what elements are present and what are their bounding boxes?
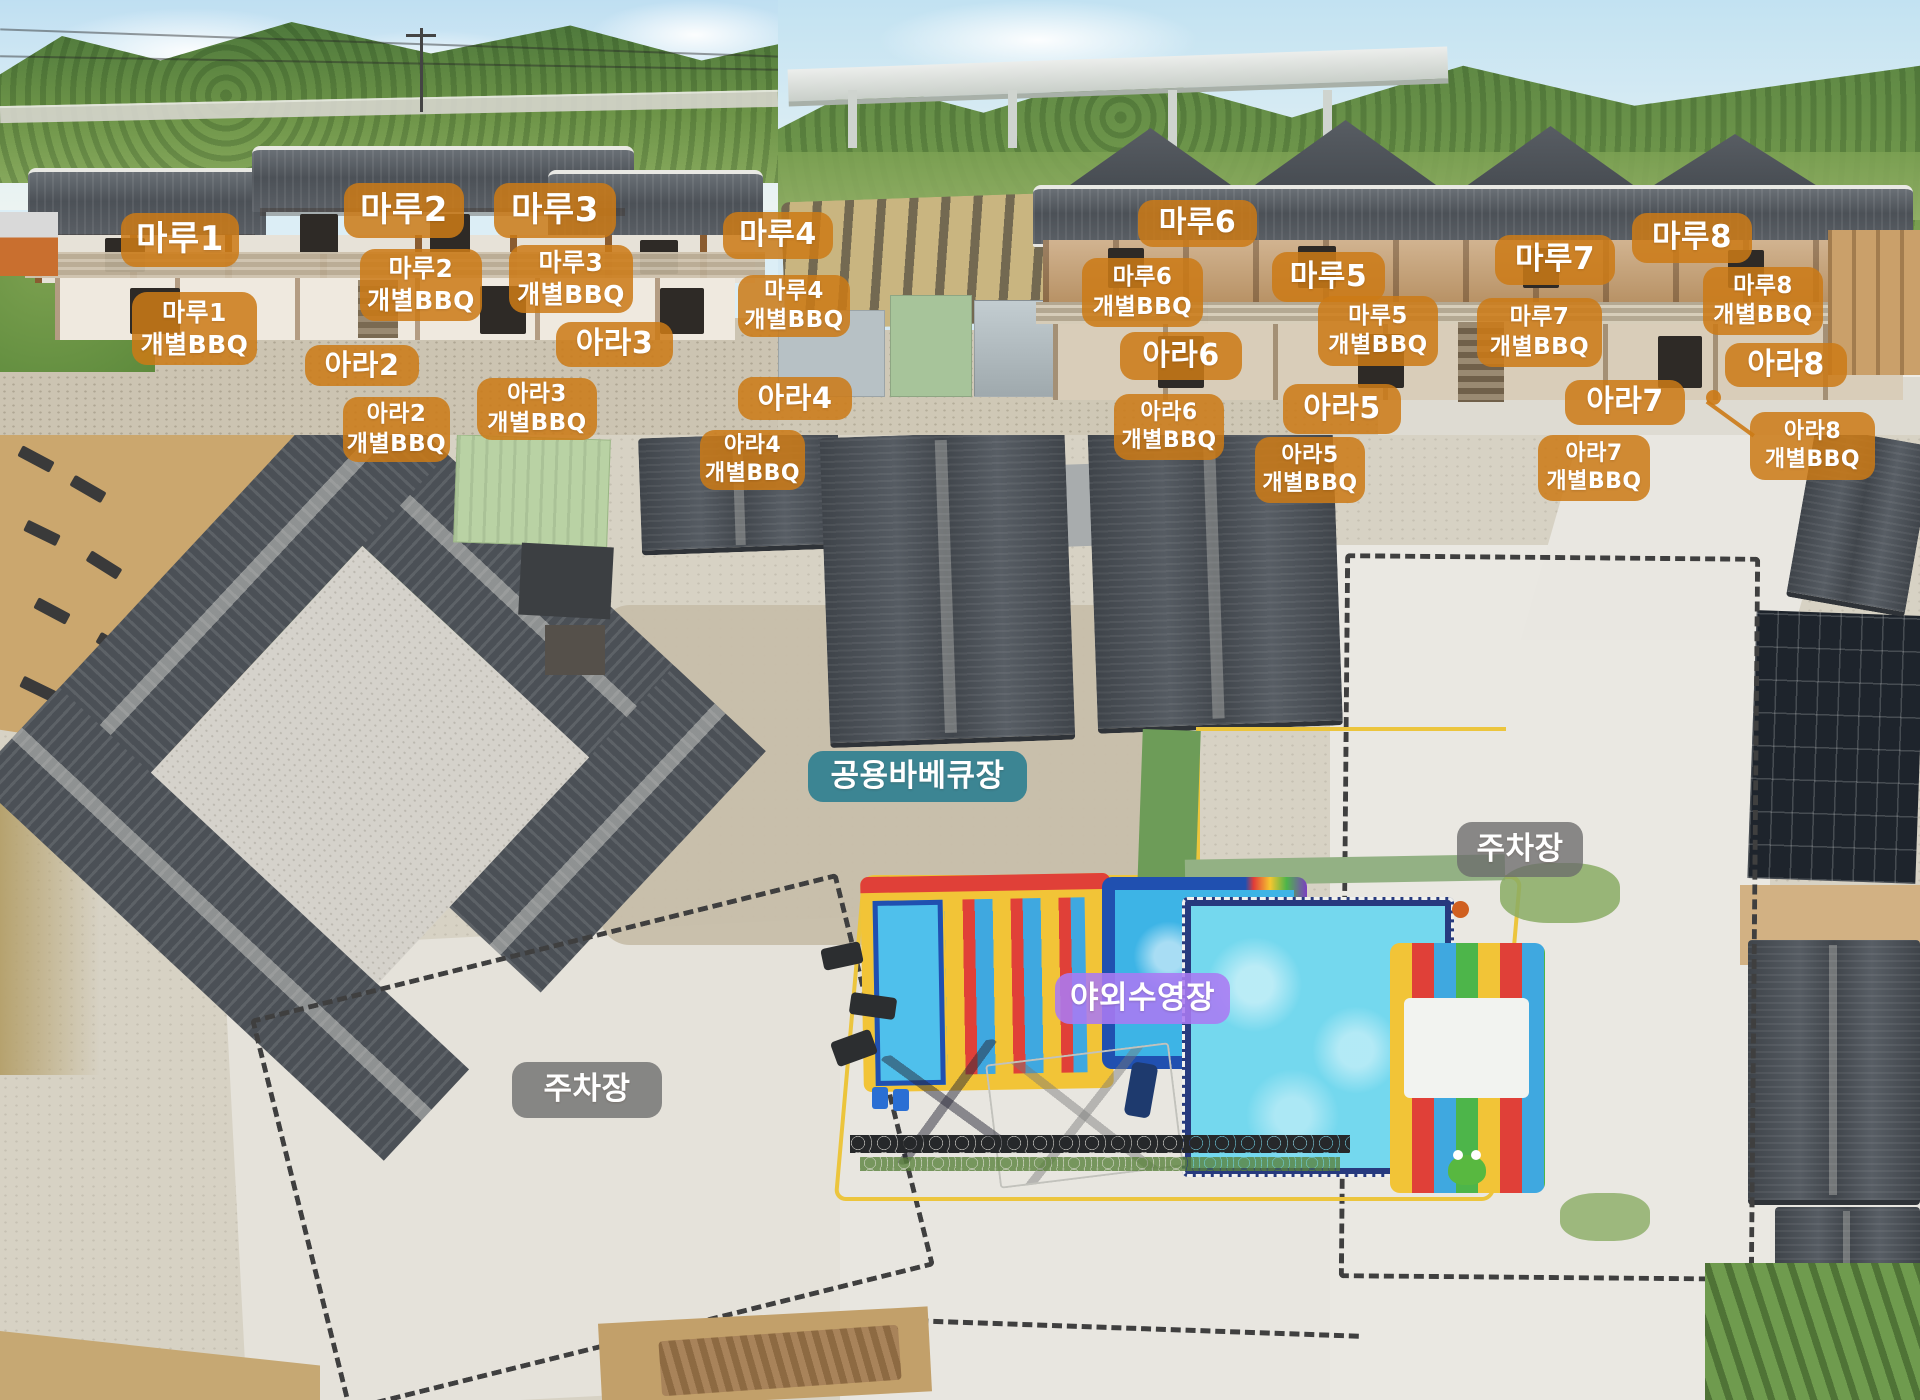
shrub-row — [860, 1157, 1340, 1171]
utility-pole — [420, 28, 423, 112]
garden-rows — [1705, 1263, 1920, 1400]
label-ara2-bbq: 아라2 개별BBQ — [343, 397, 450, 462]
label-maru1-bbq: 마루1 개별BBQ — [132, 292, 257, 365]
label-ara8: 아라8 — [1725, 343, 1847, 387]
dark-container — [518, 543, 614, 620]
label-maru6-bbq: 마루6 개별BBQ — [1082, 258, 1203, 327]
label-ara6-bbq: 아라6 개별BBQ — [1114, 394, 1224, 460]
label-maru4-bbq: 마루4 개별BBQ — [738, 275, 850, 337]
facility-guide-image: 마루1마루2마루3마루4마루1 개별BBQ마루2 개별BBQ마루3 개별BBQ마… — [0, 0, 1920, 1400]
frog-eye — [1453, 1150, 1463, 1160]
label-maru3-bbq: 마루3 개별BBQ — [509, 245, 633, 313]
frog-face — [1448, 1155, 1486, 1185]
label-pool: 야외수영장 — [1055, 973, 1230, 1024]
photo-top-right-buildings: 마루6마루5마루7마루8마루6 개별BBQ마루5 개별BBQ마루7 개별BBQ마… — [778, 0, 1920, 435]
solar-panel-array — [1747, 610, 1920, 884]
viaduct-pier — [1008, 90, 1017, 148]
label-ara2: 아라2 — [305, 345, 419, 386]
label-maru5-bbq: 마루5 개별BBQ — [1318, 296, 1438, 366]
label-parking-left: 주차장 — [512, 1062, 662, 1118]
label-maru2-bbq: 마루2 개별BBQ — [360, 249, 482, 321]
blue-chair — [893, 1089, 909, 1111]
green-roof-shed — [453, 435, 611, 548]
label-maru1: 마루1 — [121, 213, 239, 267]
label-maru7-bbq: 마루7 개별BBQ — [1477, 298, 1602, 367]
label-maru8: 마루8 — [1632, 213, 1752, 263]
label-ara4-bbq: 아라4 개별BBQ — [700, 430, 805, 490]
blue-chair — [872, 1087, 888, 1109]
label-maru5: 마루5 — [1272, 252, 1385, 302]
label-shared-bbq: 공용바베큐장 — [808, 751, 1027, 802]
tire-border-row — [850, 1135, 1350, 1153]
green-container — [890, 295, 972, 397]
small-outbuilding — [0, 212, 58, 276]
viaduct-pier — [1168, 90, 1177, 148]
label-ara6: 아라6 — [1120, 332, 1242, 380]
roof-ridge — [1203, 435, 1225, 719]
label-ara7-bbq: 아라7 개별BBQ — [1538, 435, 1650, 501]
label-maru4: 마루4 — [723, 212, 833, 259]
photo-aerial-overview: 공용바베큐장주차장야외수영장주차장 — [0, 435, 1920, 1400]
label-maru7: 마루7 — [1495, 235, 1615, 285]
viaduct-pier — [848, 90, 857, 148]
frog-eye — [1471, 1150, 1481, 1160]
label-ara7: 아라7 — [1565, 380, 1685, 425]
window — [300, 214, 338, 254]
label-ara4: 아라4 — [738, 377, 852, 420]
label-maru8-bbq: 마루8 개별BBQ — [1703, 267, 1823, 335]
inflatable-slide-right — [1390, 943, 1545, 1193]
label-ara5-bbq: 아라5 개별BBQ — [1255, 437, 1365, 503]
roof-ridge — [1829, 945, 1838, 1195]
label-ara3-bbq: 아라3 개별BBQ — [477, 378, 597, 440]
slide-red-rim — [860, 873, 1110, 893]
label-maru2: 마루2 — [344, 183, 464, 238]
grass-patch — [1560, 1193, 1650, 1241]
utility-pole-crossarm — [406, 34, 436, 37]
label-ara8-bbq: 아라8 개별BBQ — [1750, 412, 1875, 480]
photo-top-left-buildings: 마루1마루2마루3마루4마루1 개별BBQ마루2 개별BBQ마루3 개별BBQ마… — [0, 0, 778, 435]
label-ara5: 아라5 — [1283, 384, 1401, 434]
roof-ridge — [935, 440, 957, 733]
slide-white-chute — [1404, 998, 1529, 1098]
label-maru6: 마루6 — [1138, 200, 1257, 247]
hanok-roof-right-1 — [1748, 940, 1920, 1205]
label-parking-right: 주차장 — [1457, 822, 1583, 877]
orange-barrel — [1452, 901, 1469, 918]
label-ara3: 아라3 — [556, 322, 673, 367]
long-roof-left — [820, 435, 1076, 748]
storage-clutter — [545, 625, 605, 675]
aerial-scenery — [0, 435, 1920, 1400]
label-maru3: 마루3 — [494, 183, 616, 238]
